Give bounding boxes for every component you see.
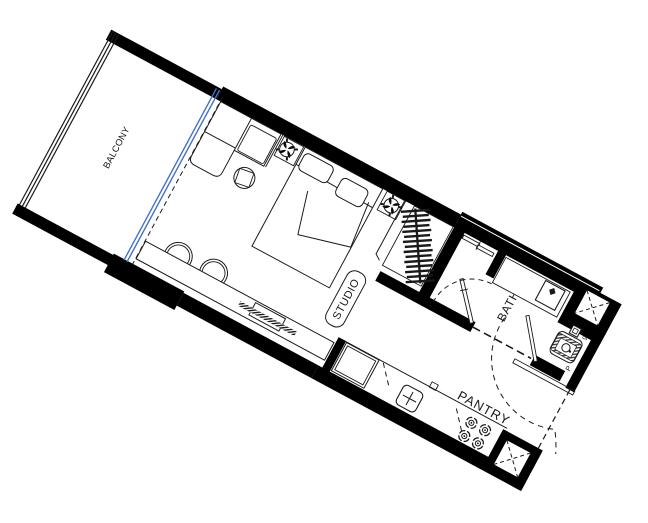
svg-text:PANTRY: PANTRY bbox=[455, 388, 513, 428]
svg-text:P: P bbox=[565, 365, 574, 373]
